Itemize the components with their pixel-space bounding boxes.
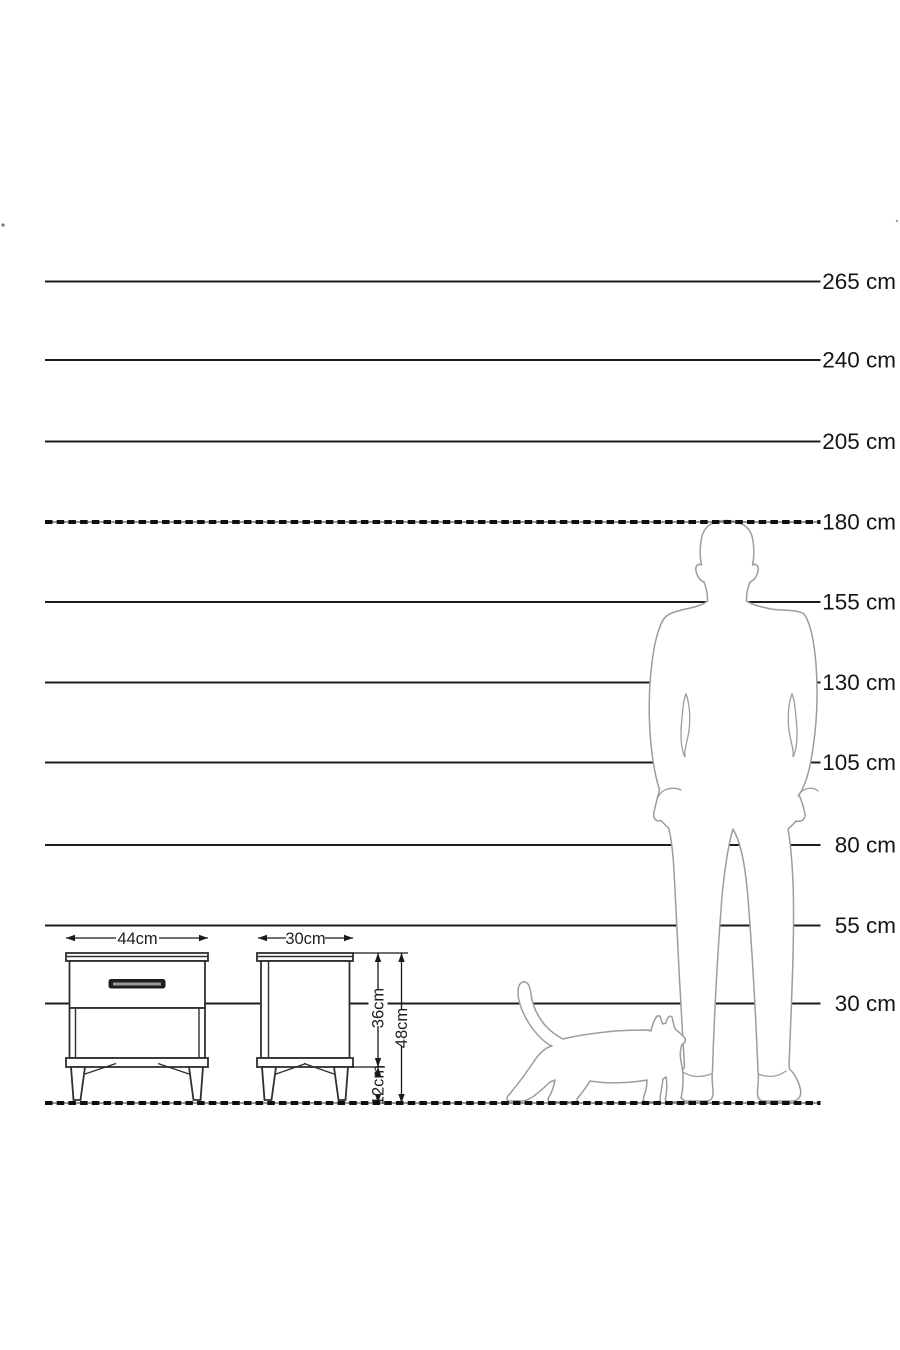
body-height-label: 36cm <box>370 988 388 1028</box>
ruler-labels: 265 cm 240 cm 205 cm 180 cm 155 cm 130 c… <box>822 269 896 1016</box>
total-height-dimension: 48cm <box>392 953 411 1103</box>
dim-30-arrow-left <box>258 935 267 941</box>
label-265cm: 265 cm <box>822 269 896 294</box>
dim-36-arrow-top <box>375 953 381 962</box>
label-155cm: 155 cm <box>822 590 896 615</box>
label-105cm: 105 cm <box>822 750 896 775</box>
diagram-canvas: 44cm 30cm 36cm <box>0 0 900 1350</box>
nightstand-side-view: 30cm <box>257 930 353 1100</box>
dim-48-arrow-top <box>398 953 404 962</box>
cat-silhouette <box>507 982 686 1102</box>
front-width-label: 44cm <box>117 930 157 948</box>
front-right-leg <box>189 1067 203 1100</box>
dimension-diagram: 44cm 30cm 36cm <box>0 0 900 1350</box>
side-depth-dimension: 30cm <box>258 930 353 948</box>
man-outline <box>649 521 817 1102</box>
dim-44-arrow-right <box>199 935 208 941</box>
man-silhouette <box>649 521 818 1102</box>
label-240cm: 240 cm <box>822 348 896 373</box>
front-open-shelf <box>70 1008 206 1058</box>
label-205cm: 205 cm <box>822 429 896 454</box>
nightstand-front-view: 44cm <box>66 930 208 1100</box>
drawer-handle-inner <box>113 983 161 986</box>
left-edge-speck <box>1 223 4 226</box>
side-depth-label: 30cm <box>285 930 325 948</box>
dim-30-arrow-right <box>344 935 353 941</box>
side-body-panel <box>261 961 350 1058</box>
leg-height-dimension: 12cm <box>370 1065 388 1105</box>
label-180cm: 180 cm <box>822 510 896 535</box>
total-height-label: 48cm <box>393 1008 411 1048</box>
front-left-leg <box>71 1067 85 1100</box>
right-edge-speck <box>896 220 898 222</box>
body-height-dimension: 36cm <box>369 953 388 1067</box>
front-width-dimension: 44cm <box>66 930 208 948</box>
leg-height-label: 12cm <box>370 1065 388 1105</box>
label-30cm: 30 cm <box>835 991 896 1016</box>
front-bottom-panel <box>66 1058 208 1067</box>
cat-outline <box>507 982 686 1102</box>
label-55cm: 55 cm <box>835 913 896 938</box>
label-130cm: 130 cm <box>822 670 896 695</box>
label-80cm: 80 cm <box>835 833 896 858</box>
height-dimensions: 36cm 12cm 48cm <box>350 953 411 1105</box>
dim-44-arrow-left <box>66 935 75 941</box>
side-left-leg <box>262 1067 276 1100</box>
side-bottom-panel <box>257 1058 353 1067</box>
side-right-leg <box>334 1067 348 1100</box>
